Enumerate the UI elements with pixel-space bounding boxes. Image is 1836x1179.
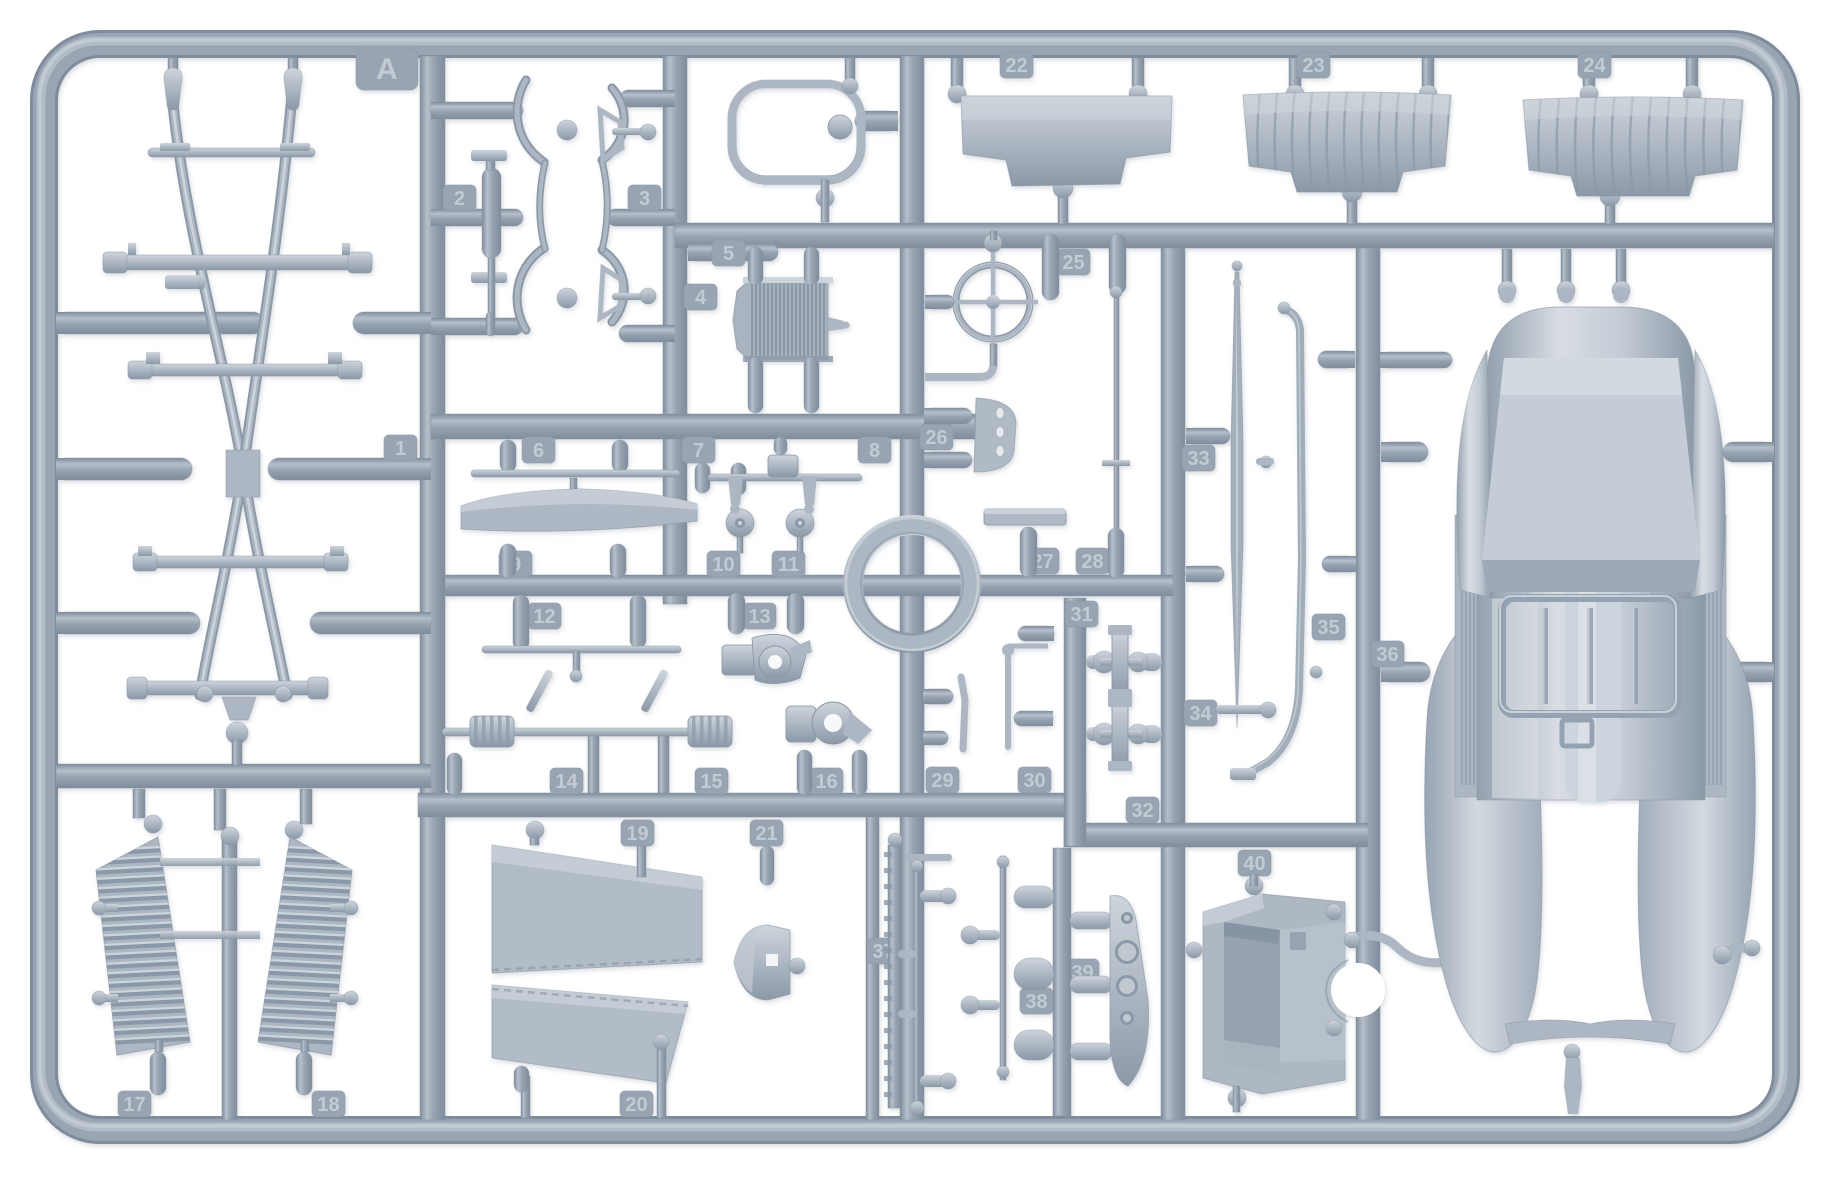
svg-text:30: 30 (1023, 770, 1045, 792)
svg-text:26: 26 (925, 427, 947, 449)
svg-text:25: 25 (1062, 252, 1084, 274)
svg-text:28: 28 (1081, 551, 1103, 573)
svg-text:32: 32 (1131, 800, 1153, 822)
svg-text:18: 18 (317, 1094, 339, 1116)
svg-text:7: 7 (693, 440, 704, 462)
svg-text:31: 31 (1070, 604, 1092, 626)
svg-text:22: 22 (1005, 55, 1027, 77)
svg-text:13: 13 (748, 606, 770, 628)
svg-text:38: 38 (1025, 991, 1047, 1013)
svg-text:40: 40 (1243, 853, 1265, 875)
svg-text:15: 15 (700, 771, 722, 793)
svg-text:34: 34 (1189, 703, 1212, 725)
svg-text:23: 23 (1302, 55, 1324, 77)
svg-text:2: 2 (454, 188, 465, 210)
svg-text:21: 21 (755, 823, 777, 845)
svg-text:8: 8 (869, 440, 880, 462)
svg-text:12: 12 (533, 606, 555, 628)
svg-text:33: 33 (1187, 448, 1209, 470)
svg-text:5: 5 (723, 243, 734, 265)
svg-text:A: A (376, 53, 398, 86)
svg-text:1: 1 (395, 438, 406, 460)
svg-text:11: 11 (778, 554, 799, 576)
svg-text:10: 10 (712, 554, 734, 576)
svg-text:36: 36 (1376, 644, 1398, 666)
svg-text:4: 4 (695, 287, 707, 309)
svg-text:29: 29 (931, 770, 953, 792)
svg-text:35: 35 (1317, 617, 1339, 639)
svg-text:14: 14 (555, 771, 578, 793)
svg-text:6: 6 (533, 440, 544, 462)
svg-text:17: 17 (123, 1094, 145, 1116)
svg-text:24: 24 (1583, 55, 1606, 77)
svg-text:20: 20 (625, 1094, 647, 1116)
svg-text:19: 19 (626, 823, 648, 845)
svg-text:16: 16 (815, 771, 837, 793)
svg-text:3: 3 (639, 188, 650, 210)
